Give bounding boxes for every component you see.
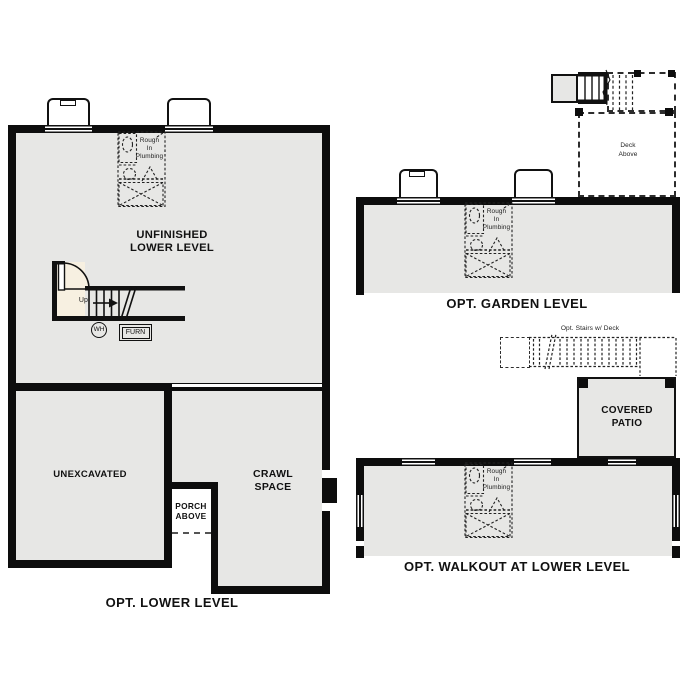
floorplan-sheet: WH FURN [0, 0, 687, 687]
furnace-symbol: FURN [119, 324, 152, 341]
crawl-wall-pier [322, 478, 337, 503]
garden-floor [364, 205, 672, 293]
window [672, 495, 680, 527]
patio-post [665, 379, 674, 388]
wall-joint-line [172, 384, 322, 387]
deck-stair-landing-outline [607, 72, 676, 112]
deck-post [668, 70, 675, 77]
covered-patio-label: COVERED PATIO [587, 405, 667, 430]
window-well-ladder [409, 171, 425, 177]
porch-above-label: PORCH ABOVE [169, 501, 213, 521]
stair-landing [551, 74, 578, 103]
window [356, 495, 364, 527]
unexcavated-label: UNEXCAVATED [25, 469, 155, 480]
window [397, 197, 440, 205]
window [45, 125, 92, 133]
rough-in-plumbing-label: Rough In Plumbing [480, 208, 513, 231]
furnace-label: FURN [122, 327, 150, 339]
window-well [167, 98, 211, 127]
deck-post [665, 108, 673, 116]
deck-post [634, 70, 641, 77]
window [514, 458, 551, 466]
window [608, 458, 636, 466]
deck-above-label: Deck Above [600, 142, 656, 159]
opt-stairs-deck-label: Opt. Stairs w/ Deck [528, 325, 652, 333]
crawl-space-floor [218, 489, 322, 586]
unfinished-lower-level-label: UNFINISHED LOWER LEVEL [92, 229, 252, 255]
window-well [514, 169, 553, 197]
rough-in-plumbing-label: Rough In Plumbing [133, 137, 166, 160]
rough-in-plumbing-label: Rough In Plumbing [480, 468, 513, 491]
crawl-wall-gap [322, 503, 330, 511]
window [165, 125, 213, 133]
walkout-floor [364, 466, 672, 556]
stairs-up-label: Up [72, 297, 88, 305]
wall-gap [356, 541, 364, 546]
walkout-opt-stairs-icon [529, 334, 676, 376]
garden-level-title: OPT. GARDEN LEVEL [382, 296, 652, 311]
deck-post [575, 108, 583, 116]
opt-stairs-landing-outline [500, 337, 530, 368]
crawl-wall-gap [322, 470, 330, 478]
porch-open-edge [172, 532, 211, 534]
porch-side-wall [211, 482, 218, 594]
crawl-space-label: CRAWL SPACE [225, 468, 321, 494]
lower-level-title: OPT. LOWER LEVEL [62, 595, 282, 610]
garden-stairs-icon [578, 70, 610, 105]
garden-left-wall [356, 197, 364, 295]
unfinished-lower-level-room [8, 125, 330, 391]
window [402, 458, 435, 466]
crawl-bottom-wall [211, 586, 330, 594]
walkout-level-title: OPT. WALKOUT AT LOWER LEVEL [352, 559, 682, 574]
window [512, 197, 555, 205]
wall-gap [672, 541, 680, 546]
water-heater-symbol: WH [91, 322, 107, 338]
garden-right-wall [672, 197, 680, 293]
patio-post [579, 379, 588, 388]
window-well-ladder [60, 100, 76, 106]
